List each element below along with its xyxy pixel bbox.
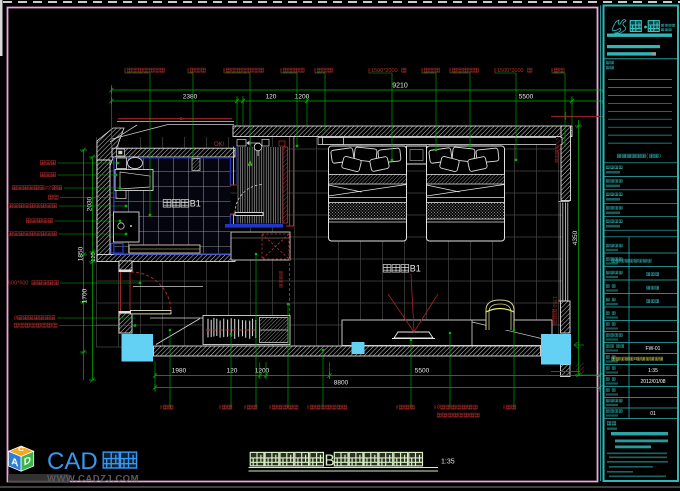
svg-text:2030: 2030: [87, 196, 94, 211]
svg-text:1200: 1200: [255, 368, 270, 375]
svg-text:1850: 1850: [78, 246, 85, 261]
svg-text:9210: 9210: [392, 83, 408, 90]
svg-text:1:35: 1:35: [648, 368, 658, 374]
svg-text:FW-01: FW-01: [646, 346, 661, 352]
svg-text:CAD: CAD: [47, 448, 98, 475]
svg-text:120: 120: [227, 368, 238, 375]
svg-text:5500: 5500: [519, 94, 534, 101]
svg-text:2012/01/08: 2012/01/08: [640, 379, 665, 385]
svg-text:4350: 4350: [572, 230, 579, 245]
svg-text:1700: 1700: [82, 288, 89, 303]
svg-text:OK!: OK!: [214, 142, 225, 148]
svg-text:WWW.CADZJ.COM: WWW.CADZJ.COM: [47, 474, 139, 485]
svg-text:#2: #2: [45, 185, 51, 191]
svg-text:8: 8: [14, 315, 17, 321]
svg-text:120: 120: [91, 252, 97, 261]
svg-text:01: 01: [650, 411, 656, 417]
svg-text:C: C: [18, 447, 24, 452]
svg-text:2380: 2380: [183, 94, 198, 101]
svg-text:1980: 1980: [172, 368, 187, 375]
svg-text:120: 120: [266, 94, 277, 101]
svg-text:5500: 5500: [415, 368, 430, 375]
svg-text:8800: 8800: [334, 380, 349, 387]
svg-text:B1: B1: [410, 264, 421, 274]
svg-text:600*600: 600*600: [8, 280, 29, 286]
svg-text:B1: B1: [190, 199, 201, 209]
svg-text:1:35: 1:35: [441, 459, 455, 466]
svg-text:B: B: [634, 356, 637, 361]
svg-text:8: 8: [437, 405, 440, 411]
svg-text:1350: 1350: [551, 296, 557, 308]
